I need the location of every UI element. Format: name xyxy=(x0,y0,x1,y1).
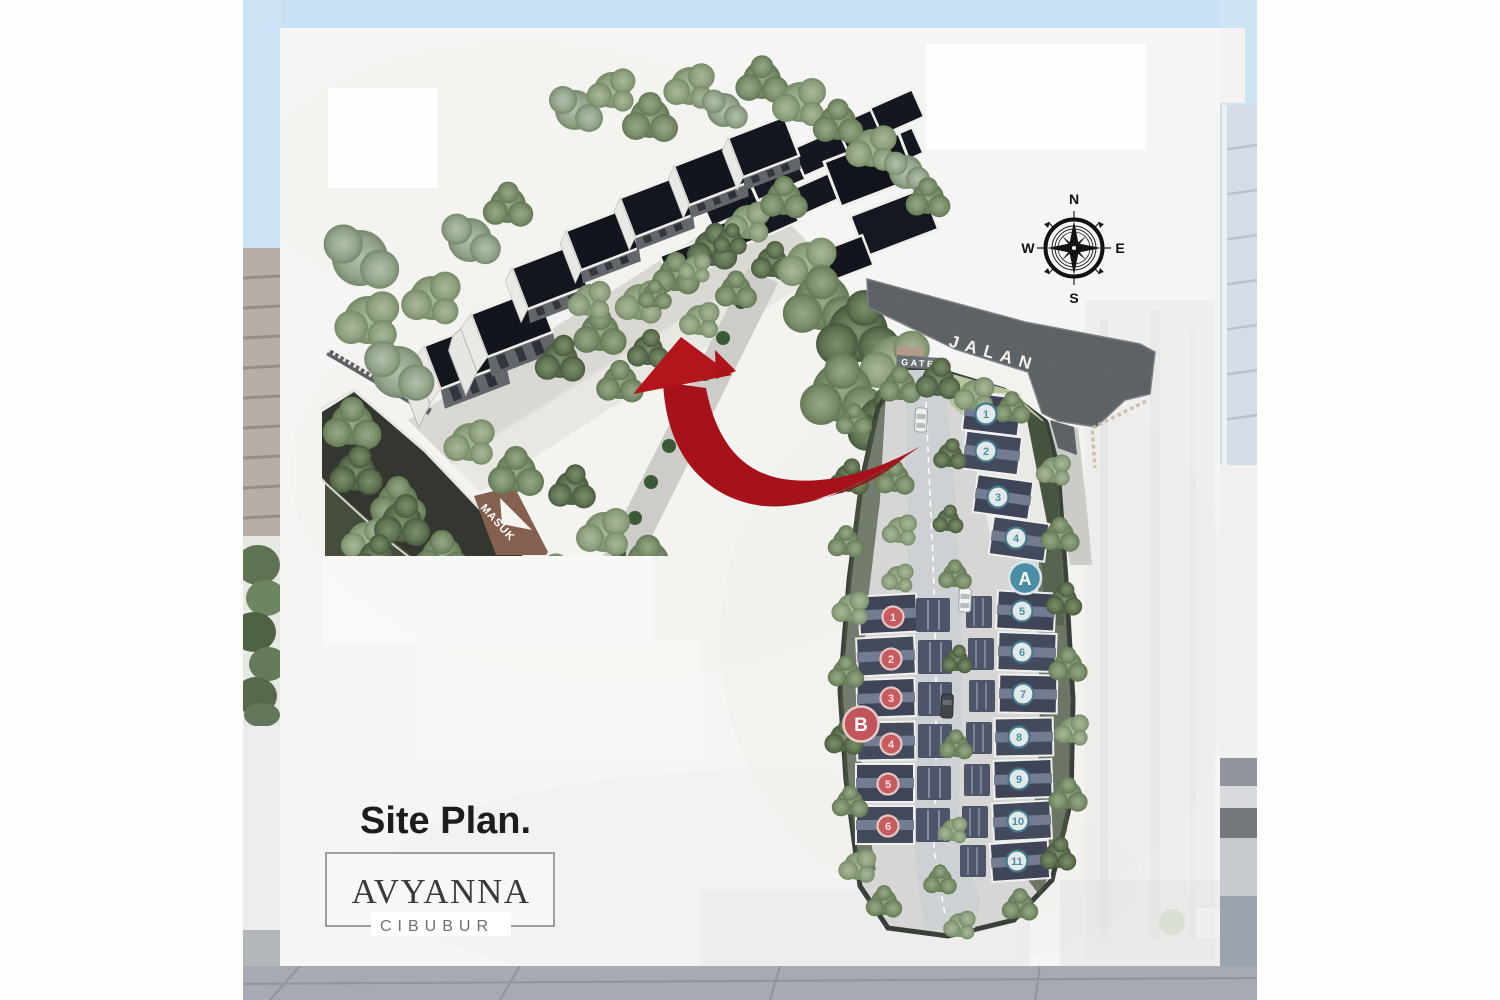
svg-text:2: 2 xyxy=(888,654,894,666)
svg-text:8: 8 xyxy=(1016,732,1022,744)
svg-text:N: N xyxy=(1069,191,1079,207)
svg-text:A: A xyxy=(1019,569,1032,589)
svg-text:5: 5 xyxy=(1019,606,1025,618)
svg-text:1: 1 xyxy=(890,612,896,624)
svg-text:5: 5 xyxy=(885,779,891,791)
svg-text:CIBUBUR: CIBUBUR xyxy=(380,918,494,935)
svg-text:1: 1 xyxy=(983,409,989,421)
svg-text:E: E xyxy=(1115,240,1124,256)
svg-text:6: 6 xyxy=(885,821,891,833)
svg-text:AVYANNA: AVYANNA xyxy=(351,872,530,911)
svg-text:3: 3 xyxy=(995,492,1001,504)
svg-text:4: 4 xyxy=(1013,533,1020,545)
svg-text:Site Plan.: Site Plan. xyxy=(360,800,531,842)
svg-text:B: B xyxy=(854,715,868,736)
svg-text:10: 10 xyxy=(1012,816,1024,828)
svg-text:W: W xyxy=(1021,240,1035,256)
svg-text:3: 3 xyxy=(888,693,894,705)
svg-text:4: 4 xyxy=(888,739,895,751)
svg-text:7: 7 xyxy=(1020,689,1026,701)
svg-text:9: 9 xyxy=(1016,774,1022,786)
svg-text:S: S xyxy=(1069,290,1078,306)
svg-text:11: 11 xyxy=(1011,856,1023,868)
svg-text:2: 2 xyxy=(983,446,989,458)
svg-text:6: 6 xyxy=(1019,647,1025,659)
